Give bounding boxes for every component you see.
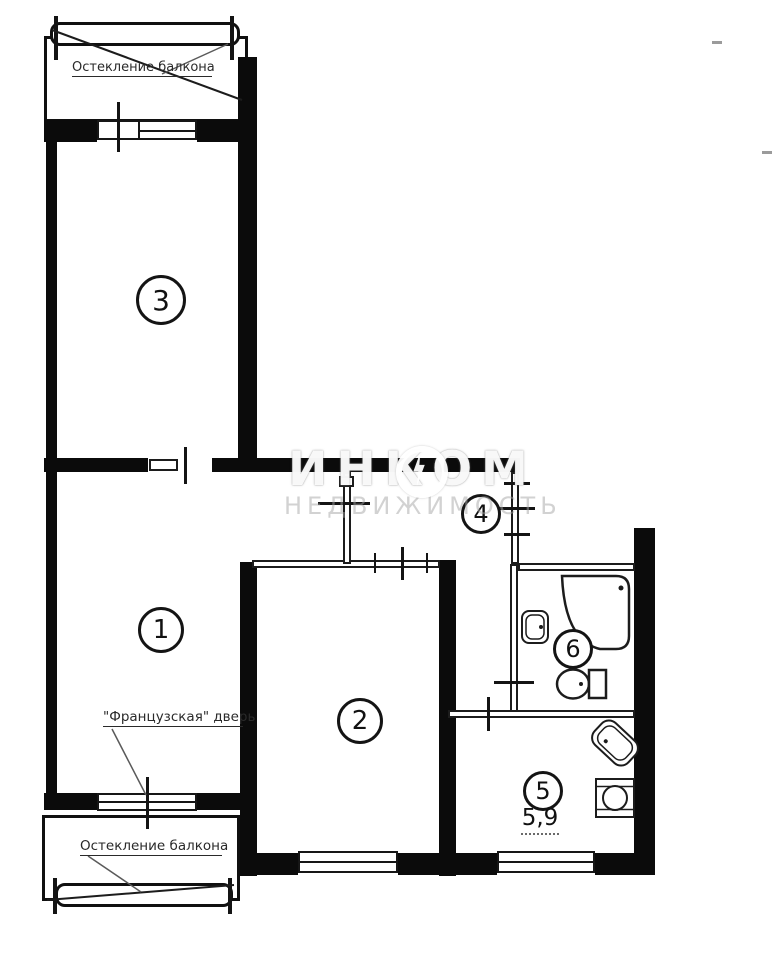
french-door-leader-line xyxy=(112,729,146,795)
french-door-label: "Французская" дверь xyxy=(103,709,243,727)
room-circle-3: 3 xyxy=(136,275,186,325)
room-circle-2: 2 xyxy=(337,698,383,744)
toilet-tank-icon xyxy=(589,670,606,698)
toilet-icon xyxy=(557,670,589,699)
kitchen-sink-icon xyxy=(588,716,642,769)
room-number: 2 xyxy=(352,706,369,736)
floor-plan: Остекление балкона Остекление балкона "Ф… xyxy=(0,0,774,960)
room-number: 6 xyxy=(565,635,580,663)
balcony-top-label: Остекление балкона xyxy=(72,60,212,77)
room-number: 1 xyxy=(153,615,170,645)
room-number: 3 xyxy=(152,284,170,317)
balcony-bottom-leader-line xyxy=(88,856,141,892)
bathtub-drain-icon xyxy=(619,586,624,591)
room-number: 5 xyxy=(535,777,550,805)
room-circle-6: 6 xyxy=(553,629,593,669)
balcony-bottom-label: Остекление балкона xyxy=(80,838,222,856)
room-circle-1: 1 xyxy=(138,607,184,653)
kitchen-area-underline xyxy=(521,833,559,835)
kitchen-area-value: 5,9 xyxy=(516,805,564,831)
